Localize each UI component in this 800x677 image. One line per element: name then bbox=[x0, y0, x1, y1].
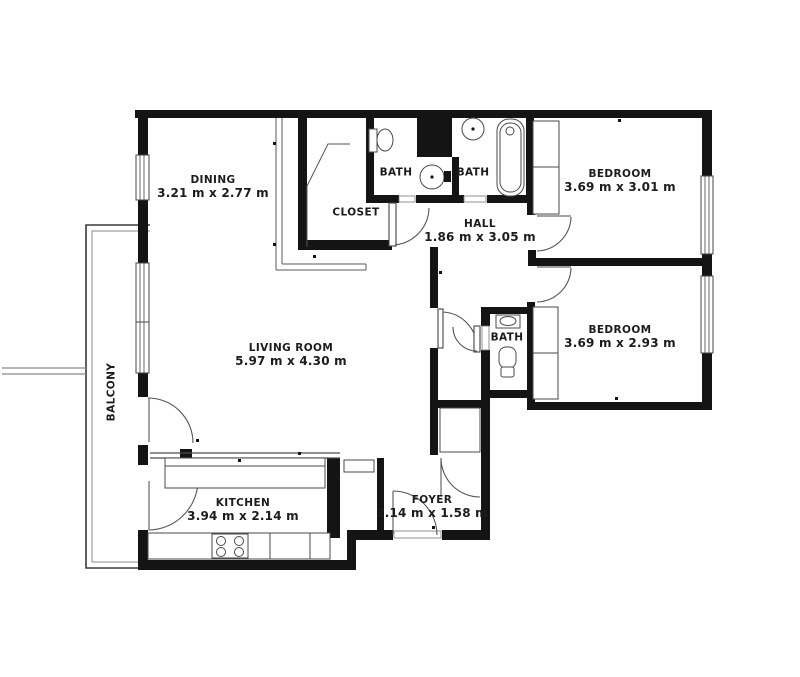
window bbox=[701, 276, 713, 353]
wardrobe bbox=[533, 121, 559, 214]
room-label-living-room: LIVING ROOM 5.97 m x 4.30 m bbox=[235, 342, 347, 368]
room-label-bath-2: BATH bbox=[457, 167, 490, 180]
floor-plan: DINING 3.21 m x 2.77 m CLOSET BATH BATH … bbox=[0, 0, 800, 677]
room-label-bedroom-1: BEDROOM 3.69 m x 3.01 m bbox=[564, 168, 676, 194]
stove bbox=[212, 534, 248, 558]
window bbox=[701, 176, 713, 254]
room-label-bath-3: BATH bbox=[491, 332, 524, 345]
toilet bbox=[499, 347, 516, 377]
wardrobe bbox=[533, 307, 558, 399]
bathtub bbox=[497, 119, 524, 196]
window bbox=[136, 155, 149, 200]
toilet bbox=[369, 129, 393, 152]
kitchen-partition bbox=[150, 453, 340, 458]
room-label-balcony: BALCONY bbox=[106, 363, 119, 422]
floor-plan-drawing bbox=[0, 0, 800, 677]
room-label-closet: CLOSET bbox=[332, 207, 379, 220]
room-label-dining: DINING 3.21 m x 2.77 m bbox=[157, 174, 269, 200]
room-label-bath-1: BATH bbox=[380, 167, 413, 180]
sink bbox=[496, 315, 520, 328]
room-label-kitchen: KITCHEN 3.94 m x 2.14 m bbox=[187, 497, 299, 523]
window bbox=[136, 263, 149, 322]
sink bbox=[420, 165, 451, 189]
room-label-foyer: FOYER 2.14 m x 1.58 m bbox=[376, 494, 488, 520]
room-label-hall: HALL 1.86 m x 3.05 m bbox=[424, 218, 536, 244]
balcony-outline bbox=[2, 225, 150, 568]
room-label-bedroom-2: BEDROOM 3.69 m x 2.93 m bbox=[564, 324, 676, 350]
window bbox=[136, 322, 149, 373]
